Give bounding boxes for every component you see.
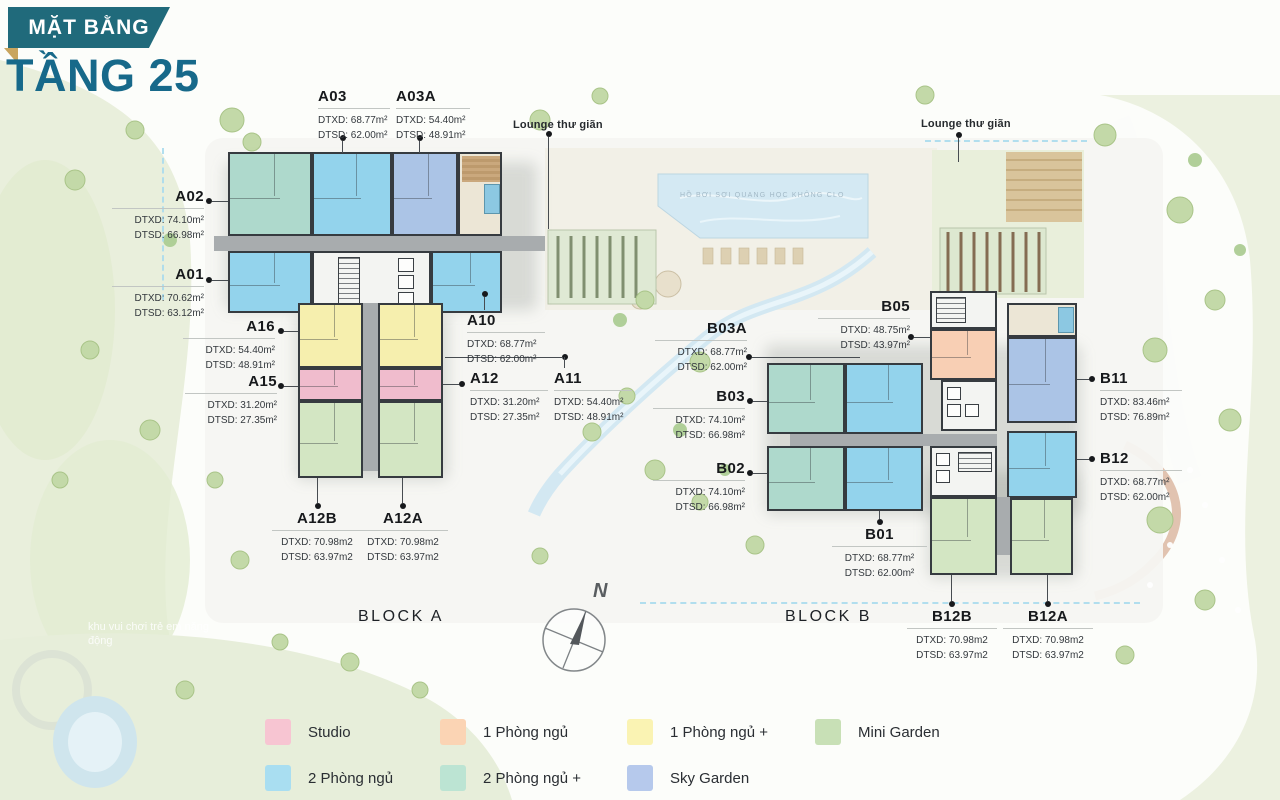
site-boundary-dash-bottom [640,602,1140,604]
leader-dot-A10 [482,291,488,297]
legend-swatch [265,719,291,745]
corridor-block-b [790,434,997,446]
leader-dot-lounge-right [956,132,962,138]
unit-name: A11 [554,370,632,387]
unit-label-A15: A15 DTXD: 31.20m² DTSD: 27.35m² [185,373,277,428]
unit-name: B11 [1100,370,1182,387]
leader-B11 [1077,379,1089,380]
unit-A12 [378,368,443,401]
unit-label-A11: A11 DTXD: 54.40m² DTSD: 48.91m² [554,370,632,425]
unit-dtxd: DTXD: 68.77m² [832,551,927,566]
unit-label-A12: A12 DTXD: 31.20m² DTSD: 27.35m² [470,370,548,425]
leader-B01 [879,511,880,519]
leader-dot-lounge-left [546,131,552,137]
leader-lounge-right [958,138,959,162]
playground-caption: khu vui chơi trẻ em năng động [88,620,218,649]
unit-dtxd: DTXD: 70.98m2 [358,535,448,550]
unit-B11 [1007,337,1077,423]
unit-dtsd: DTSD: 66.98m² [112,228,204,243]
unit-dtxd: DTXD: 83.46m² [1100,395,1182,410]
unit-dtsd: DTSD: 62.00m² [1100,490,1182,505]
elevator [936,470,950,483]
unit-A11 [378,303,443,368]
unit-label-A12A: A12A DTXD: 70.98m2 DTSD: 63.97m2 [358,510,448,565]
elevator [398,275,414,289]
unit-A03A [392,152,458,236]
leader-dot-B12B [949,601,955,607]
leader-A12A [402,478,403,503]
unit-name: A12 [470,370,548,387]
unit-B05 [930,329,997,380]
unit-dtxd: DTXD: 70.98m2 [272,535,362,550]
legend-swatch [627,765,653,791]
unit-A12A [378,401,443,478]
leader-B12 [1077,459,1089,460]
legend-item-2pn: 2 Phòng ngủ [265,765,393,791]
elevator [947,387,961,400]
unit-dtsd: DTSD: 27.35m² [470,410,548,425]
unit-B03A [767,363,845,434]
unit-label-A03A: A03A DTXD: 54.40m² DTSD: 48.91m² [396,88,470,143]
leader-B03 [753,401,767,402]
unit-dtxd: DTXD: 48.75m² [818,323,910,338]
leader-dot-B12 [1089,456,1095,462]
unit-dtsd: DTSD: 62.00m² [318,128,390,143]
unit-dtsd: DTSD: 48.91m² [554,410,632,425]
unit-name: B12B [907,608,997,625]
leader-B05 [914,337,930,338]
legend-label: 1 Phòng ngủ + [670,724,768,741]
legend-label: Studio [308,724,351,741]
unit-label-B12A: B12A DTXD: 70.98m2 DTSD: 63.97m2 [1003,608,1093,663]
legend-swatch [440,719,466,745]
sky-deck-B11 [1007,303,1077,337]
unit-dtxd: DTXD: 74.10m² [112,213,204,228]
unit-B01 [845,446,923,511]
unit-dtxd: DTXD: 74.10m² [653,485,745,500]
leader-dot-A12 [459,381,465,387]
unit-dtsd: DTSD: 48.91m² [396,128,470,143]
corridor-block-b-wing [997,497,1010,555]
leader-A10 [484,297,485,310]
leader-A12B [317,478,318,503]
unit-name: A16 [183,318,275,335]
unit-B03 [845,363,923,434]
corridor-block-a [214,236,545,251]
unit-dtsd: DTSD: 62.00m² [467,352,545,367]
pool-caption: HỒ BƠI SỢI QUANG HỌC KHÔNG CLO [680,192,845,199]
unit-dtxd: DTXD: 68.77m² [1100,475,1182,490]
legend-swatch [815,719,841,745]
unit-name: B02 [653,460,745,477]
floorplan-page: A03 DTXD: 68.77m² DTSD: 62.00m² A03A DTX… [0,0,1280,800]
unit-dtsd: DTSD: 66.98m² [653,500,745,515]
leader-A02 [212,201,228,202]
unit-name: B03 [653,388,745,405]
jacuzzi-pool [484,184,500,214]
unit-dtxd: DTXD: 54.40m² [183,343,275,358]
block-b-label: BLOCK B [785,608,872,626]
legend-swatch [440,765,466,791]
unit-name: A15 [185,373,277,390]
unit-A15 [298,368,363,401]
title-ribbon-text: MẶT BẰNG [28,16,149,40]
unit-name: A12A [358,510,448,527]
unit-dtxd: DTXD: 54.40m² [554,395,632,410]
legend-label: 2 Phòng ngủ [308,770,393,787]
elevator [936,453,950,466]
leader-A16 [284,331,298,332]
unit-dtsd: DTSD: 63.97m2 [907,648,997,663]
unit-dtxd: DTXD: 68.77m² [318,113,390,128]
elevator [947,404,961,417]
leader-B12B [951,575,952,601]
unit-dtxd: DTXD: 54.40m² [396,113,470,128]
unit-dtsd: DTSD: 48.91m² [183,358,275,373]
unit-label-A02: A02 DTXD: 74.10m² DTSD: 66.98m² [112,188,204,243]
unit-dtsd: DTSD: 63.97m2 [1003,648,1093,663]
unit-dtsd: DTSD: 76.89m² [1100,410,1182,425]
unit-name: A02 [112,188,204,205]
legend-item-sky-garden: Sky Garden [627,765,749,791]
unit-name: B01 [832,526,927,543]
unit-dtxd: DTXD: 74.10m² [653,413,745,428]
unit-dtxd: DTXD: 70.62m² [112,291,204,306]
unit-name: A03A [396,88,470,105]
unit-A16 [298,303,363,368]
unit-label-B12: B12 DTXD: 68.77m² DTSD: 62.00m² [1100,450,1182,505]
core-block-b-mid [941,380,997,431]
unit-dtxd: DTXD: 70.98m2 [907,633,997,648]
compass-north-label: N [593,580,607,603]
unit-label-A10: A10 DTXD: 68.77m² DTSD: 62.00m² [467,312,545,367]
legend-label: Mini Garden [858,724,940,741]
unit-B12A [1010,498,1073,575]
core-block-b-upper [930,291,997,329]
stairs [936,297,966,323]
leader-dot-B12A [1045,601,1051,607]
sauna-deck [462,156,500,182]
unit-dtxd: DTXD: 68.77m² [655,345,747,360]
leader-B12A [1047,575,1048,601]
unit-dtxd: DTXD: 31.20m² [470,395,548,410]
stairs [338,257,360,309]
unit-dtsd: DTSD: 63.97m2 [272,550,362,565]
unit-name: A12B [272,510,362,527]
leader-B03A [752,357,860,358]
unit-B12 [1007,431,1077,498]
leader-A01 [212,280,228,281]
amenity-deck-block-a [458,152,502,236]
core-block-b-lower [930,446,997,497]
page-title: TẦNG 25 [6,50,200,102]
sky-deck-pool [1058,307,1074,333]
unit-dtxd: DTXD: 68.77m² [467,337,545,352]
leader-dot-B11 [1089,376,1095,382]
lounge-label-right: Lounge thư giãn [921,118,1011,130]
unit-name: B05 [818,298,910,315]
unit-dtsd: DTSD: 63.97m2 [358,550,448,565]
unit-name: A03 [318,88,390,105]
elevator [398,258,414,272]
leader-dot-A12B [315,503,321,509]
unit-B12B [930,497,997,575]
unit-label-A03: A03 DTXD: 68.77m² DTSD: 62.00m² [318,88,390,143]
unit-dtsd: DTSD: 62.00m² [655,360,747,375]
unit-label-A01: A01 DTXD: 70.62m² DTSD: 63.12m² [112,266,204,321]
legend-item-2pn-plus: 2 Phòng ngủ + [440,765,581,791]
unit-B02 [767,446,845,511]
unit-dtsd: DTSD: 62.00m² [832,566,927,581]
leader-dot-A12A [400,503,406,509]
leader-dot-B01 [877,519,883,525]
leader-A15 [284,386,298,387]
legend-swatch [265,765,291,791]
unit-label-B12B: B12B DTXD: 70.98m2 DTSD: 63.97m2 [907,608,997,663]
leader-lounge-left [548,137,549,229]
site-boundary-dash-topright [925,140,1087,142]
unit-label-B03: B03 DTXD: 74.10m² DTSD: 66.98m² [653,388,745,443]
unit-dtsd: DTSD: 27.35m² [185,413,277,428]
unit-dtxd: DTXD: 31.20m² [185,398,277,413]
unit-name: A10 [467,312,545,329]
legend-item-studio: Studio [265,719,351,745]
unit-label-B01: B01 DTXD: 68.77m² DTSD: 62.00m² [832,526,927,581]
unit-name: A01 [112,266,204,283]
leader-A12 [443,384,459,385]
leader-A11-v [564,357,565,368]
legend-item-mini-garden: Mini Garden [815,719,940,745]
unit-label-B03A: B03A DTXD: 68.77m² DTSD: 62.00m² [655,320,747,375]
unit-dtsd: DTSD: 66.98m² [653,428,745,443]
corridor-block-a-wing [363,303,378,471]
legend-swatch [627,719,653,745]
unit-dtsd: DTSD: 43.97m² [818,338,910,353]
unit-label-B02: B02 DTXD: 74.10m² DTSD: 66.98m² [653,460,745,515]
title-ribbon: MẶT BẰNG [8,7,170,48]
unit-label-B11: B11 DTXD: 83.46m² DTSD: 76.89m² [1100,370,1182,425]
unit-name: B12 [1100,450,1182,467]
unit-label-A12B: A12B DTXD: 70.98m2 DTSD: 63.97m2 [272,510,362,565]
legend-label: 1 Phòng ngủ [483,724,568,741]
stairs [958,452,992,472]
elevator [965,404,979,417]
legend-item-1pn-plus: 1 Phòng ngủ + [627,719,768,745]
legend-item-1pn: 1 Phòng ngủ [440,719,568,745]
unit-dtxd: DTXD: 70.98m2 [1003,633,1093,648]
unit-A03 [312,152,392,236]
unit-A02 [228,152,312,236]
block-a-label: BLOCK A [358,608,444,626]
unit-name: B12A [1003,608,1093,625]
unit-label-A16: A16 DTXD: 54.40m² DTSD: 48.91m² [183,318,275,373]
unit-name: B03A [655,320,747,337]
unit-label-B05: B05 DTXD: 48.75m² DTSD: 43.97m² [818,298,910,353]
unit-A12B [298,401,363,478]
lounge-label-left: Lounge thư giãn [513,119,603,131]
legend-label: Sky Garden [670,770,749,787]
compass-icon [543,609,605,671]
leader-B02 [753,473,767,474]
legend-label: 2 Phòng ngủ + [483,770,581,787]
